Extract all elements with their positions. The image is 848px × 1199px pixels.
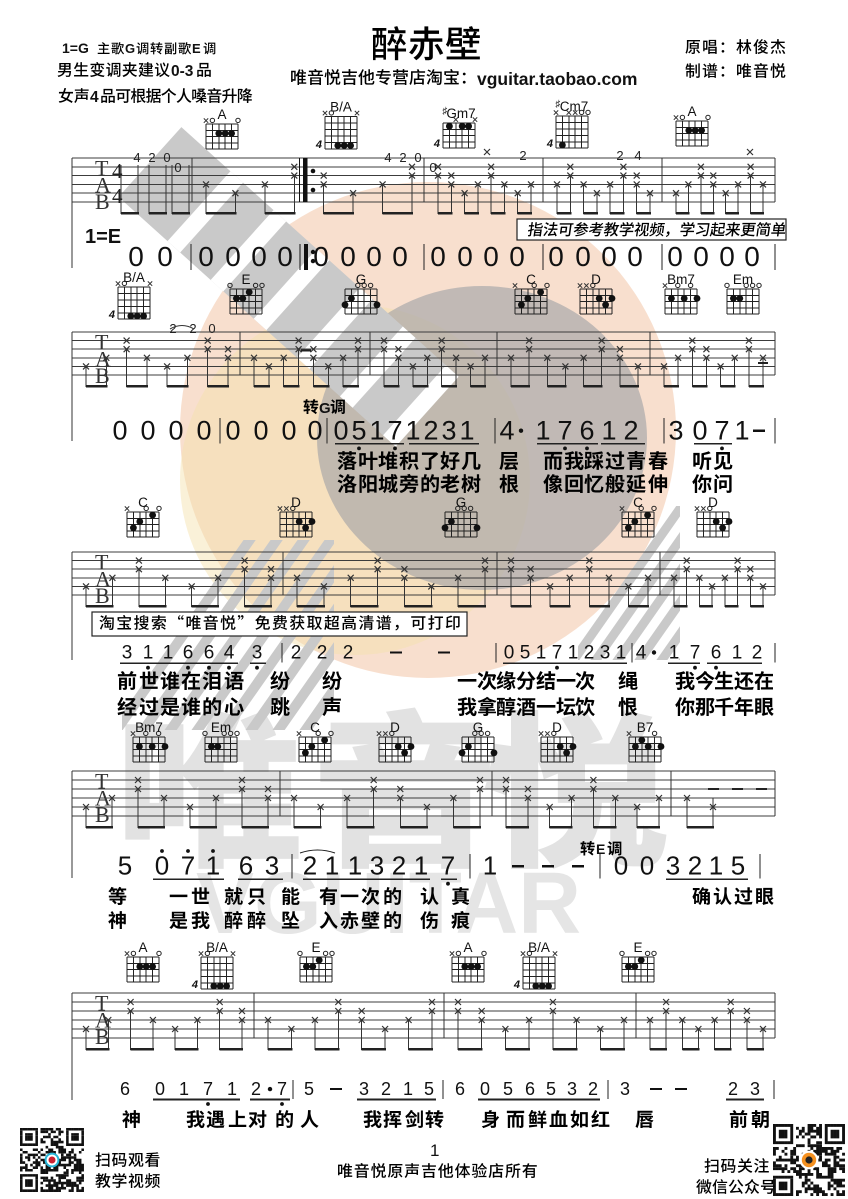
svg-text:3: 3 — [359, 1079, 369, 1099]
svg-text:4: 4 — [315, 139, 322, 151]
svg-text:2: 2 — [251, 1079, 261, 1099]
svg-text:5: 5 — [351, 415, 366, 445]
svg-text:2: 2 — [588, 1079, 598, 1099]
svg-text:1: 1 — [536, 643, 547, 664]
svg-text:0: 0 — [155, 1079, 165, 1099]
svg-text:0: 0 — [483, 241, 499, 272]
svg-text:7: 7 — [690, 643, 701, 664]
svg-text:D: D — [591, 272, 601, 287]
svg-text:0: 0 — [225, 241, 241, 272]
svg-text:6: 6 — [711, 643, 722, 664]
svg-text:6: 6 — [239, 851, 253, 881]
svg-text:E: E — [192, 41, 201, 56]
svg-text:0: 0 — [208, 321, 215, 336]
svg-text:A: A — [687, 104, 696, 119]
svg-text:Gm7: Gm7 — [446, 106, 475, 121]
svg-text:0: 0 — [366, 241, 382, 272]
svg-text:4: 4 — [90, 89, 99, 106]
svg-text:0: 0 — [719, 241, 735, 272]
svg-text:0: 0 — [251, 241, 267, 272]
svg-text:4: 4 — [513, 979, 520, 991]
svg-text:1: 1 — [732, 643, 743, 664]
svg-text:3: 3 — [122, 643, 133, 664]
svg-text:6: 6 — [204, 643, 215, 664]
svg-text:2: 2 — [392, 851, 406, 881]
svg-text:1: 1 — [405, 415, 420, 445]
svg-text:0: 0 — [392, 241, 408, 272]
svg-text:4: 4 — [108, 309, 115, 321]
svg-text:D: D — [390, 720, 400, 735]
svg-text:0: 0 — [627, 241, 643, 272]
svg-text:1: 1 — [535, 415, 550, 445]
svg-text:6: 6 — [525, 1079, 535, 1099]
svg-text:6: 6 — [455, 1079, 465, 1099]
svg-text:G: G — [473, 720, 484, 735]
svg-text:1=E: 1=E — [85, 226, 121, 248]
svg-text:0: 0 — [253, 415, 268, 445]
svg-text:2: 2 — [752, 643, 763, 664]
svg-text:G: G — [356, 272, 367, 287]
svg-text:7: 7 — [441, 851, 455, 881]
svg-text:4: 4 — [112, 159, 123, 183]
svg-text:1: 1 — [483, 851, 497, 881]
svg-text:1: 1 — [430, 1141, 439, 1160]
svg-text:2: 2 — [584, 643, 595, 664]
svg-text:A: A — [138, 940, 147, 955]
svg-text:5: 5 — [304, 1079, 314, 1099]
svg-text:0: 0 — [457, 241, 473, 272]
svg-text:0: 0 — [163, 150, 170, 165]
svg-text:0: 0 — [340, 241, 356, 272]
svg-text:0: 0 — [140, 415, 155, 445]
svg-text:1: 1 — [734, 415, 749, 445]
svg-text:5: 5 — [731, 851, 745, 881]
svg-text:2: 2 — [343, 643, 354, 664]
svg-text:1: 1 — [206, 851, 220, 881]
svg-text:4: 4 — [133, 150, 140, 165]
svg-text:C: C — [138, 495, 148, 510]
svg-text:3: 3 — [370, 851, 384, 881]
svg-text:2: 2 — [423, 415, 438, 445]
svg-text:5: 5 — [118, 851, 132, 881]
svg-text:G: G — [319, 400, 331, 417]
svg-text:0: 0 — [430, 241, 446, 272]
svg-text:2: 2 — [399, 150, 406, 165]
svg-text:0: 0 — [414, 150, 421, 165]
svg-text:2: 2 — [688, 851, 702, 881]
svg-text:7: 7 — [557, 415, 572, 445]
svg-text:3: 3 — [668, 415, 683, 445]
svg-text:1: 1 — [369, 415, 384, 445]
svg-text:0: 0 — [198, 241, 214, 272]
svg-text:1: 1 — [601, 415, 616, 445]
svg-text:4: 4 — [499, 415, 514, 445]
svg-text:E: E — [311, 940, 320, 955]
svg-text:4: 4 — [636, 643, 647, 664]
svg-text:D: D — [708, 495, 718, 510]
svg-text:1: 1 — [709, 851, 723, 881]
svg-text:0: 0 — [168, 415, 183, 445]
svg-text:C: C — [310, 720, 320, 735]
svg-text:E: E — [241, 272, 250, 287]
svg-text:3: 3 — [441, 415, 456, 445]
svg-text:5: 5 — [503, 1079, 513, 1099]
svg-text:B: B — [95, 1024, 110, 1049]
svg-text:0: 0 — [692, 415, 707, 445]
svg-text:vguitar.taobao.com: vguitar.taobao.com — [477, 69, 637, 89]
svg-text:C: C — [526, 272, 536, 287]
svg-text:VGUITAR: VGUITAR — [196, 855, 581, 952]
svg-text:D: D — [291, 495, 301, 510]
svg-text:7: 7 — [203, 1079, 213, 1099]
svg-text:4: 4 — [384, 150, 391, 165]
svg-text:7: 7 — [387, 415, 402, 445]
svg-text:2: 2 — [303, 851, 317, 881]
svg-text:0: 0 — [174, 160, 181, 175]
svg-text:0: 0 — [509, 241, 525, 272]
svg-text:1: 1 — [163, 643, 174, 664]
svg-text:B: B — [95, 583, 110, 608]
svg-text:1=G: 1=G — [62, 40, 89, 56]
svg-text:0: 0 — [277, 241, 293, 272]
svg-text:7: 7 — [277, 1079, 287, 1099]
svg-text:B: B — [95, 802, 110, 827]
svg-text:3: 3 — [600, 643, 611, 664]
svg-text:0: 0 — [614, 851, 628, 881]
svg-text:3: 3 — [666, 851, 680, 881]
svg-text:7: 7 — [714, 415, 729, 445]
svg-text:0: 0 — [480, 1079, 490, 1099]
svg-text:6: 6 — [183, 643, 194, 664]
svg-text:2: 2 — [317, 643, 328, 664]
svg-text:0: 0 — [429, 160, 436, 175]
svg-text:E: E — [596, 841, 605, 857]
svg-text:0: 0 — [504, 643, 515, 664]
svg-text:6: 6 — [120, 1079, 130, 1099]
svg-text:1: 1 — [414, 851, 428, 881]
svg-text:1: 1 — [179, 1079, 189, 1099]
svg-text:B: B — [95, 363, 110, 388]
svg-text:5: 5 — [546, 1079, 556, 1099]
svg-text:5: 5 — [520, 643, 531, 664]
svg-text:4: 4 — [433, 138, 440, 150]
svg-text:2: 2 — [519, 148, 526, 163]
svg-text:0: 0 — [548, 241, 564, 272]
svg-text:B7: B7 — [637, 720, 654, 735]
svg-text:0: 0 — [196, 415, 211, 445]
svg-text:0: 0 — [225, 415, 240, 445]
svg-text:7: 7 — [552, 643, 563, 664]
svg-text:0-3: 0-3 — [171, 63, 194, 80]
svg-text:7: 7 — [181, 851, 195, 881]
svg-text:Bm7: Bm7 — [135, 720, 163, 735]
svg-text:2: 2 — [728, 1079, 738, 1099]
svg-text:1: 1 — [227, 1079, 237, 1099]
svg-text:Bm7: Bm7 — [667, 272, 695, 287]
svg-text:0: 0 — [744, 241, 760, 272]
svg-text:3: 3 — [265, 851, 279, 881]
svg-text:1: 1 — [568, 643, 579, 664]
svg-text:2: 2 — [623, 415, 638, 445]
svg-text:2: 2 — [148, 150, 155, 165]
svg-text:0: 0 — [128, 241, 144, 272]
svg-text:3: 3 — [750, 1079, 760, 1099]
svg-text:E: E — [633, 940, 642, 955]
svg-text:0: 0 — [693, 241, 709, 272]
svg-text:2: 2 — [291, 643, 302, 664]
svg-text:0: 0 — [157, 241, 173, 272]
svg-text:G: G — [456, 495, 467, 510]
svg-text:4: 4 — [634, 148, 641, 163]
svg-text:G: G — [125, 41, 135, 56]
svg-text:1: 1 — [459, 415, 474, 445]
svg-text:1: 1 — [669, 643, 680, 664]
svg-text:0: 0 — [313, 241, 329, 272]
svg-text:A: A — [463, 940, 472, 955]
svg-text:6: 6 — [579, 415, 594, 445]
svg-text:1: 1 — [616, 643, 627, 664]
svg-text:1: 1 — [325, 851, 339, 881]
svg-text:1: 1 — [143, 643, 154, 664]
svg-text:C: C — [633, 495, 643, 510]
svg-text:4: 4 — [546, 138, 553, 150]
svg-text:2: 2 — [381, 1079, 391, 1099]
svg-text:0: 0 — [575, 241, 591, 272]
svg-text:1: 1 — [403, 1079, 413, 1099]
svg-text:0: 0 — [281, 415, 296, 445]
svg-text:4: 4 — [191, 979, 198, 991]
svg-text:D: D — [552, 720, 562, 735]
svg-text:3: 3 — [252, 643, 263, 664]
svg-text:2: 2 — [616, 148, 623, 163]
svg-text:1: 1 — [348, 851, 362, 881]
svg-text:4: 4 — [224, 643, 235, 664]
svg-text:3: 3 — [620, 1079, 630, 1099]
svg-text:0: 0 — [640, 851, 654, 881]
svg-text:0: 0 — [601, 241, 617, 272]
svg-text:0: 0 — [667, 241, 683, 272]
svg-text:B: B — [95, 189, 110, 214]
svg-text:0: 0 — [112, 415, 127, 445]
svg-text:0: 0 — [333, 415, 348, 445]
svg-text:4: 4 — [112, 184, 123, 208]
svg-text:5: 5 — [424, 1079, 434, 1099]
svg-text:A: A — [217, 107, 226, 122]
svg-text:0: 0 — [155, 851, 169, 881]
svg-text:0: 0 — [307, 415, 322, 445]
svg-text:3: 3 — [567, 1079, 577, 1099]
